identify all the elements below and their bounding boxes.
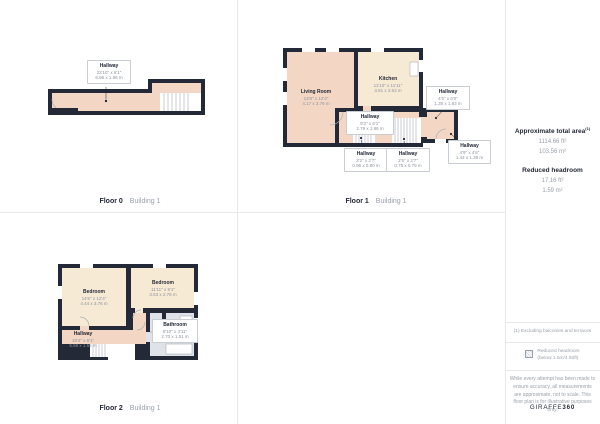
room-dims-metric: 0.75 x 0.79 m <box>389 163 427 169</box>
floor2-svg <box>40 248 220 378</box>
entry-opening <box>108 344 135 360</box>
room-label-hallway-bottom1: Hallway 3'2" x 2'7" 0.96 x 0.80 m <box>344 148 388 172</box>
room-dims-metric: 1.44 x 1.39 m <box>451 155 488 161</box>
room-label-hallway-mid: Hallway 9'2" x 6'1" 2.79 x 1.86 m <box>346 111 394 135</box>
door-opening <box>80 326 89 330</box>
giraffe360-logo: GIRAFFE360 <box>505 404 600 411</box>
floor2-plan: Bedroom 14'6" x 12'4" 4.44 x 3.76 m Bedr… <box>40 248 220 378</box>
room-label-hallway: Hallway 22'10" x 6'1" 6.96 x 1.86 m <box>87 60 131 84</box>
kitchen-appliance <box>410 62 418 76</box>
building-label: Building 1 <box>130 405 161 412</box>
floor-label: Floor 1 <box>345 198 368 205</box>
reduced-headroom-swatch-icon <box>525 350 533 358</box>
room-label-kitchen: Kitchen 11'10" x 11'11" 3.61 x 3.63 m <box>365 76 411 94</box>
room-dims-metric: 5.58 x 1.55 m <box>60 343 106 349</box>
floor1-caption: Floor 1 Building 1 <box>276 198 476 205</box>
logo-suffix-text: 360 <box>562 404 575 411</box>
total-area-section: Approximate total area(1) 1114.66 ft² 10… <box>505 126 600 155</box>
total-area-title: Approximate total area(1) <box>505 126 600 135</box>
room-label-bedroom-left: Bedroom 14'6" x 12'4" 4.44 x 3.76 m <box>70 289 118 307</box>
room-dims-metric: 2.70 x 1.51 m <box>155 334 195 340</box>
room-label-living-room: Living Room 13'8" x 12'4" 4.17 x 3.76 m <box>292 89 340 107</box>
bathtub-fixture <box>166 344 192 354</box>
floorplan-page: Hallway 22'10" x 6'1" 6.96 x 1.86 m Floo… <box>0 0 600 424</box>
legend: Reduced headroom (below 1.5m/4.92ft) <box>505 349 600 362</box>
reduced-headroom-title: Reduced headroom <box>505 167 600 174</box>
room-dims-metric: 2.79 x 1.86 m <box>349 126 391 132</box>
footnote-marker: (1) <box>585 126 590 131</box>
room-dims-metric: 6.96 x 1.86 m <box>90 75 128 81</box>
room-label-hallway-bottom2: Hallway 2'5" x 2'7" 0.75 x 0.79 m <box>386 148 430 172</box>
room-dims-metric: 4.17 x 3.76 m <box>292 101 340 107</box>
floor0-caption: Floor 0 Building 1 <box>40 198 220 205</box>
stairs <box>392 118 421 143</box>
sidebar-section-divider <box>505 322 600 323</box>
grid-divider-horizontal <box>0 212 505 213</box>
legend-line2: (below 1.5m/4.92ft) <box>537 356 579 363</box>
door-opening <box>146 332 150 342</box>
stairs <box>160 93 201 111</box>
floor1-plan: Living Room 13'8" x 12'4" 4.17 x 3.76 m … <box>268 38 488 178</box>
reduced-headroom-metric: 1.59 m² <box>505 188 600 194</box>
sidebar-section-divider <box>505 370 600 371</box>
room-label-hallway-right: Hallway 4'5" x 6'0" 1.35 x 1.83 m <box>426 86 470 110</box>
building-label: Building 1 <box>376 198 407 205</box>
room-label-hallway-far-right: Hallway 4'9" x 4'6" 1.44 x 1.39 m <box>448 140 491 164</box>
room-dims-metric: 1.35 x 1.83 m <box>429 101 467 107</box>
logo-brand-text: GIRAFFE <box>530 404 562 411</box>
total-area-title-text: Approximate total area <box>515 128 585 135</box>
floor-label: Floor 0 <box>99 198 122 205</box>
footnote: (1) Excluding balconies and terraces <box>505 329 600 334</box>
floor0-plan: Hallway 22'10" x 6'1" 6.96 x 1.86 m <box>40 58 220 124</box>
total-area-imperial: 1114.66 ft² <box>505 139 600 145</box>
room-label-bedroom-right: Bedroom 11'11" x 9'1" 3.63 x 2.76 m <box>139 280 187 298</box>
room-dims-metric: 4.44 x 3.76 m <box>70 301 118 307</box>
hallway-extension-floor <box>427 112 454 139</box>
legend-line1: Reduced headroom <box>537 349 579 356</box>
building-label: Building 1 <box>130 198 161 205</box>
floor2-caption: Floor 2 Building 1 <box>40 405 220 412</box>
room-dims-metric: 3.63 x 2.76 m <box>139 292 187 298</box>
total-area-metric: 103.56 m² <box>505 149 600 155</box>
floor-label: Floor 2 <box>99 405 122 412</box>
reduced-headroom-imperial: 17.16 ft² <box>505 178 600 184</box>
legend-text: Reduced headroom (below 1.5m/4.92ft) <box>537 349 579 362</box>
vestibule-floor <box>133 313 146 330</box>
room-label-bathroom: Bathroom 8'10" x 4'11" 2.70 x 1.51 m <box>152 319 198 343</box>
room-label-hallway: Hallway 18'4" x 5'1" 5.58 x 1.55 m <box>60 331 106 349</box>
floor0-wall-stub <box>48 108 78 115</box>
sidebar-section-divider <box>505 342 600 343</box>
reduced-headroom-section: Reduced headroom 17.16 ft² 1.59 m² <box>505 167 600 194</box>
label-leader-dot <box>105 100 107 102</box>
room-dims-metric: 3.61 x 3.63 m <box>365 88 411 94</box>
room-dims-metric: 0.96 x 0.80 m <box>347 163 385 169</box>
